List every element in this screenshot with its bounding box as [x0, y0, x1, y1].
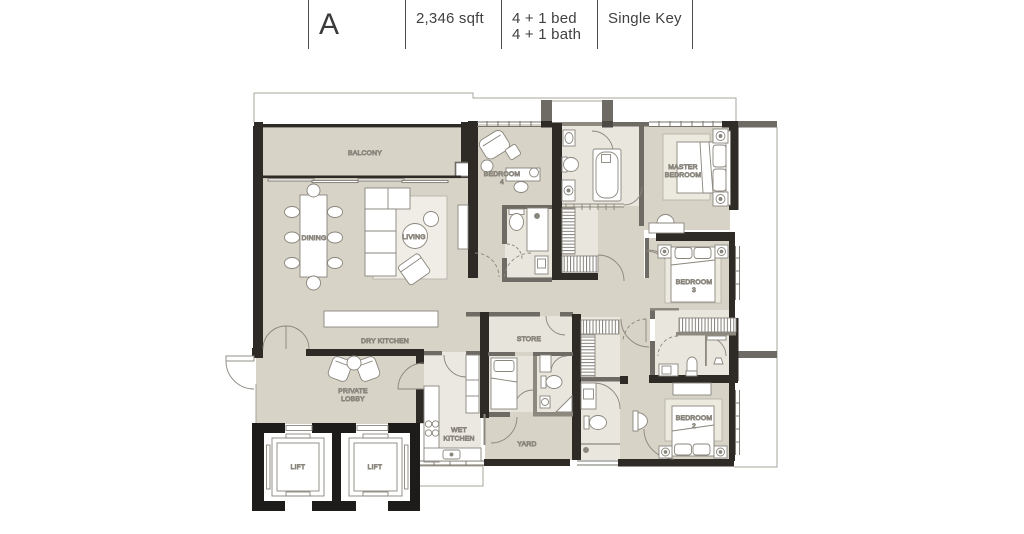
svg-text:BEDROOM: BEDROOM	[676, 279, 713, 286]
svg-text:LIFT: LIFT	[368, 464, 383, 471]
svg-text:MASTER: MASTER	[668, 164, 698, 171]
svg-text:3: 3	[692, 287, 696, 294]
svg-text:DINING: DINING	[302, 235, 327, 242]
svg-text:BALCONY: BALCONY	[348, 150, 382, 157]
svg-text:YARD: YARD	[517, 441, 536, 448]
svg-text:WET: WET	[451, 427, 467, 434]
svg-text:2: 2	[692, 423, 696, 430]
svg-text:PRIVATE: PRIVATE	[338, 388, 368, 395]
svg-text:LIFT: LIFT	[291, 464, 306, 471]
svg-text:DRY KITCHEN: DRY KITCHEN	[361, 338, 409, 345]
svg-text:LOBBY: LOBBY	[341, 396, 365, 403]
svg-text:KITCHEN: KITCHEN	[443, 436, 474, 443]
svg-text:STORE: STORE	[517, 336, 542, 343]
svg-text:BEDROOM: BEDROOM	[676, 415, 713, 422]
svg-text:4: 4	[500, 179, 504, 186]
svg-text:BEDROOM: BEDROOM	[665, 172, 702, 179]
svg-text:LIVING: LIVING	[402, 234, 426, 241]
svg-text:BEDROOM: BEDROOM	[484, 171, 521, 178]
